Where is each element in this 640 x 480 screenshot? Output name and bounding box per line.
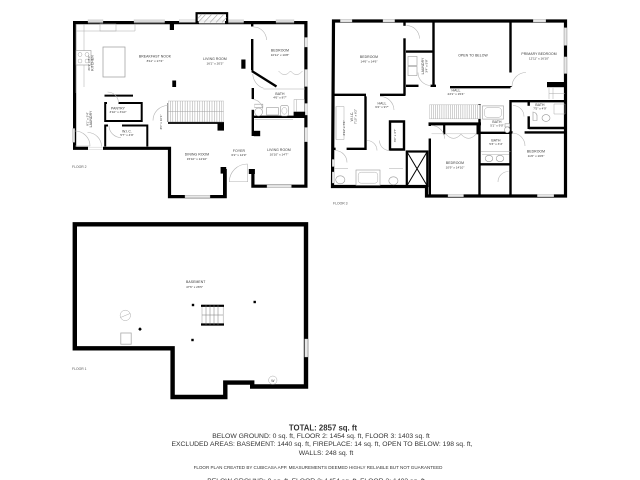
svg-text:10'10" x 14'7": 10'10" x 14'7" [270,153,289,157]
svg-text:8'11" x 17'4": 8'11" x 17'4" [147,59,164,63]
svg-text:FLOOR PLAN CREATED BY CUBICASA: FLOOR PLAN CREATED BY CUBICASA APP. MEAS… [194,465,444,470]
svg-text:BEDROOM: BEDROOM [446,161,464,165]
svg-text:3'0" x 3'7": 3'0" x 3'7" [393,129,397,143]
svg-text:15'10" x 14'10": 15'10" x 14'10" [187,157,207,161]
svg-text:PRIMARY BEDROOM: PRIMARY BEDROOM [521,52,556,56]
svg-text:FLOOR 3: FLOOR 3 [333,202,348,206]
svg-text:8'1" x 3'4": 8'1" x 3'4" [86,112,90,126]
svg-text:LAUNDRY: LAUNDRY [89,110,93,127]
svg-text:20'1" x 8'0": 20'1" x 8'0" [87,55,91,70]
svg-text:3'10" x 3'10": 3'10" x 3'10" [110,110,127,114]
svg-text:5'7" x 4'9": 5'7" x 4'9" [120,133,134,137]
svg-text:6'2" x 12'9": 6'2" x 12'9" [231,153,246,157]
svg-text:23'1" x 15'4": 23'1" x 15'4" [448,92,465,96]
svg-text:3'0" x 10'1": 3'0" x 10'1" [159,114,163,129]
svg-text:BREAKFAST NOOK: BREAKFAST NOOK [139,55,172,59]
svg-text:4'6" x 8'7": 4'6" x 8'7" [273,96,287,100]
svg-text:7'5" x 4'9": 7'5" x 4'9" [533,107,547,111]
svg-text:OPEN TO BELOW: OPEN TO BELOW [458,54,488,58]
svg-text:3'4" x 5'8": 3'4" x 5'8" [425,59,429,73]
svg-text:LIVING ROOM: LIVING ROOM [267,148,291,152]
svg-text:LIVING ROOM: LIVING ROOM [203,57,227,61]
svg-text:5'1" x 9'0": 5'1" x 9'0" [490,124,504,128]
svg-text:12'11" x 16'10": 12'11" x 16'10" [529,57,549,61]
svg-text:BEDROOM: BEDROOM [360,55,378,59]
svg-text:11'0" x 16'6": 11'0" x 16'6" [528,154,545,158]
svg-text:EXCLUDED AREAS: BASEMENT: 1440: EXCLUDED AREAS: BASEMENT: 1440 sq. ft, F… [171,441,472,448]
svg-text:FLOOR 1: FLOOR 1 [72,367,87,371]
svg-text:TOTAL: 2857 sq. ft: TOTAL: 2857 sq. ft [289,423,358,432]
svg-text:6'2" x 9'7": 6'2" x 9'7" [375,105,389,109]
svg-text:BEDROOM: BEDROOM [271,49,289,53]
svg-text:7'10" x 6'2": 7'10" x 6'2" [354,109,358,124]
svg-text:10'9" x 14'10": 10'9" x 14'10" [446,166,465,170]
svg-text:47'6" x 26'5": 47'6" x 26'5" [186,285,203,289]
svg-text:FLOOR 2: FLOOR 2 [72,165,87,169]
svg-text:10'11" x 10'8": 10'11" x 10'8" [271,53,289,57]
svg-text:BELOW GROUND: 0 sq. ft, FLOOR: BELOW GROUND: 0 sq. ft, FLOOR 2: 1454 sq… [212,433,430,440]
svg-text:BASEMENT: BASEMENT [186,280,205,284]
svg-text:WALLS: 248 sq. ft: WALLS: 248 sq. ft [299,450,354,457]
svg-text:14'6" x 14'6": 14'6" x 14'6" [361,60,378,64]
svg-text:DINING ROOM: DINING ROOM [185,153,210,157]
svg-text:2'11" x 7'6": 2'11" x 7'6" [342,120,346,135]
svg-text:5'3" x 3'4": 5'3" x 3'4" [489,142,503,146]
svg-text:BEDROOM: BEDROOM [527,150,545,154]
svg-text:16'1" x 20'3": 16'1" x 20'3" [207,62,224,66]
svg-text:KITCHEN: KITCHEN [91,55,95,71]
